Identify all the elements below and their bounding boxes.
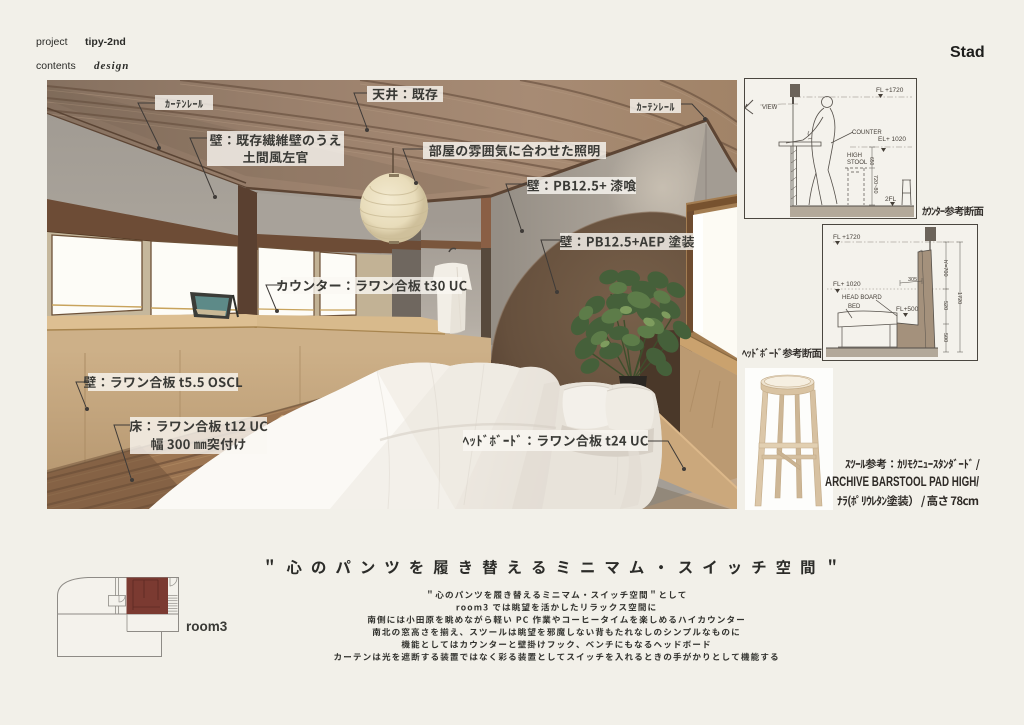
- svg-text:520: 520: [942, 301, 948, 310]
- svg-text:EL+ 1020: EL+ 1020: [878, 136, 906, 143]
- svg-text:HIGH: HIGH: [847, 153, 862, 159]
- svg-text:FL +1720: FL +1720: [833, 234, 861, 241]
- svg-text:720~80: 720~80: [872, 175, 878, 194]
- svg-text:h'=700: h'=700: [942, 260, 948, 277]
- svg-text:room3: room3: [186, 619, 228, 634]
- svg-text:design: design: [94, 60, 129, 72]
- svg-text:500: 500: [942, 333, 948, 342]
- svg-text:contents: contents: [36, 60, 76, 72]
- svg-text:tipy-2nd: tipy-2nd: [85, 36, 126, 48]
- svg-text:FL+500: FL+500: [896, 306, 919, 313]
- svg-text:BED: BED: [848, 304, 861, 310]
- svg-text:FL +1720: FL +1720: [876, 87, 904, 94]
- svg-text:1720: 1720: [956, 292, 962, 304]
- svg-text:FL+ 1020: FL+ 1020: [833, 281, 861, 288]
- svg-text:STOOL: STOOL: [847, 160, 868, 166]
- svg-text:2FL: 2FL: [885, 196, 897, 203]
- svg-text:305: 305: [908, 277, 917, 283]
- svg-text:ARCHIVE BARSTOOL PAD HIGH/: ARCHIVE BARSTOOL PAD HIGH/: [825, 474, 979, 489]
- svg-text:Stad: Stad: [950, 44, 985, 61]
- svg-text:650: 650: [868, 157, 874, 166]
- svg-text:project: project: [36, 36, 68, 48]
- svg-text:VIEW: VIEW: [762, 105, 778, 111]
